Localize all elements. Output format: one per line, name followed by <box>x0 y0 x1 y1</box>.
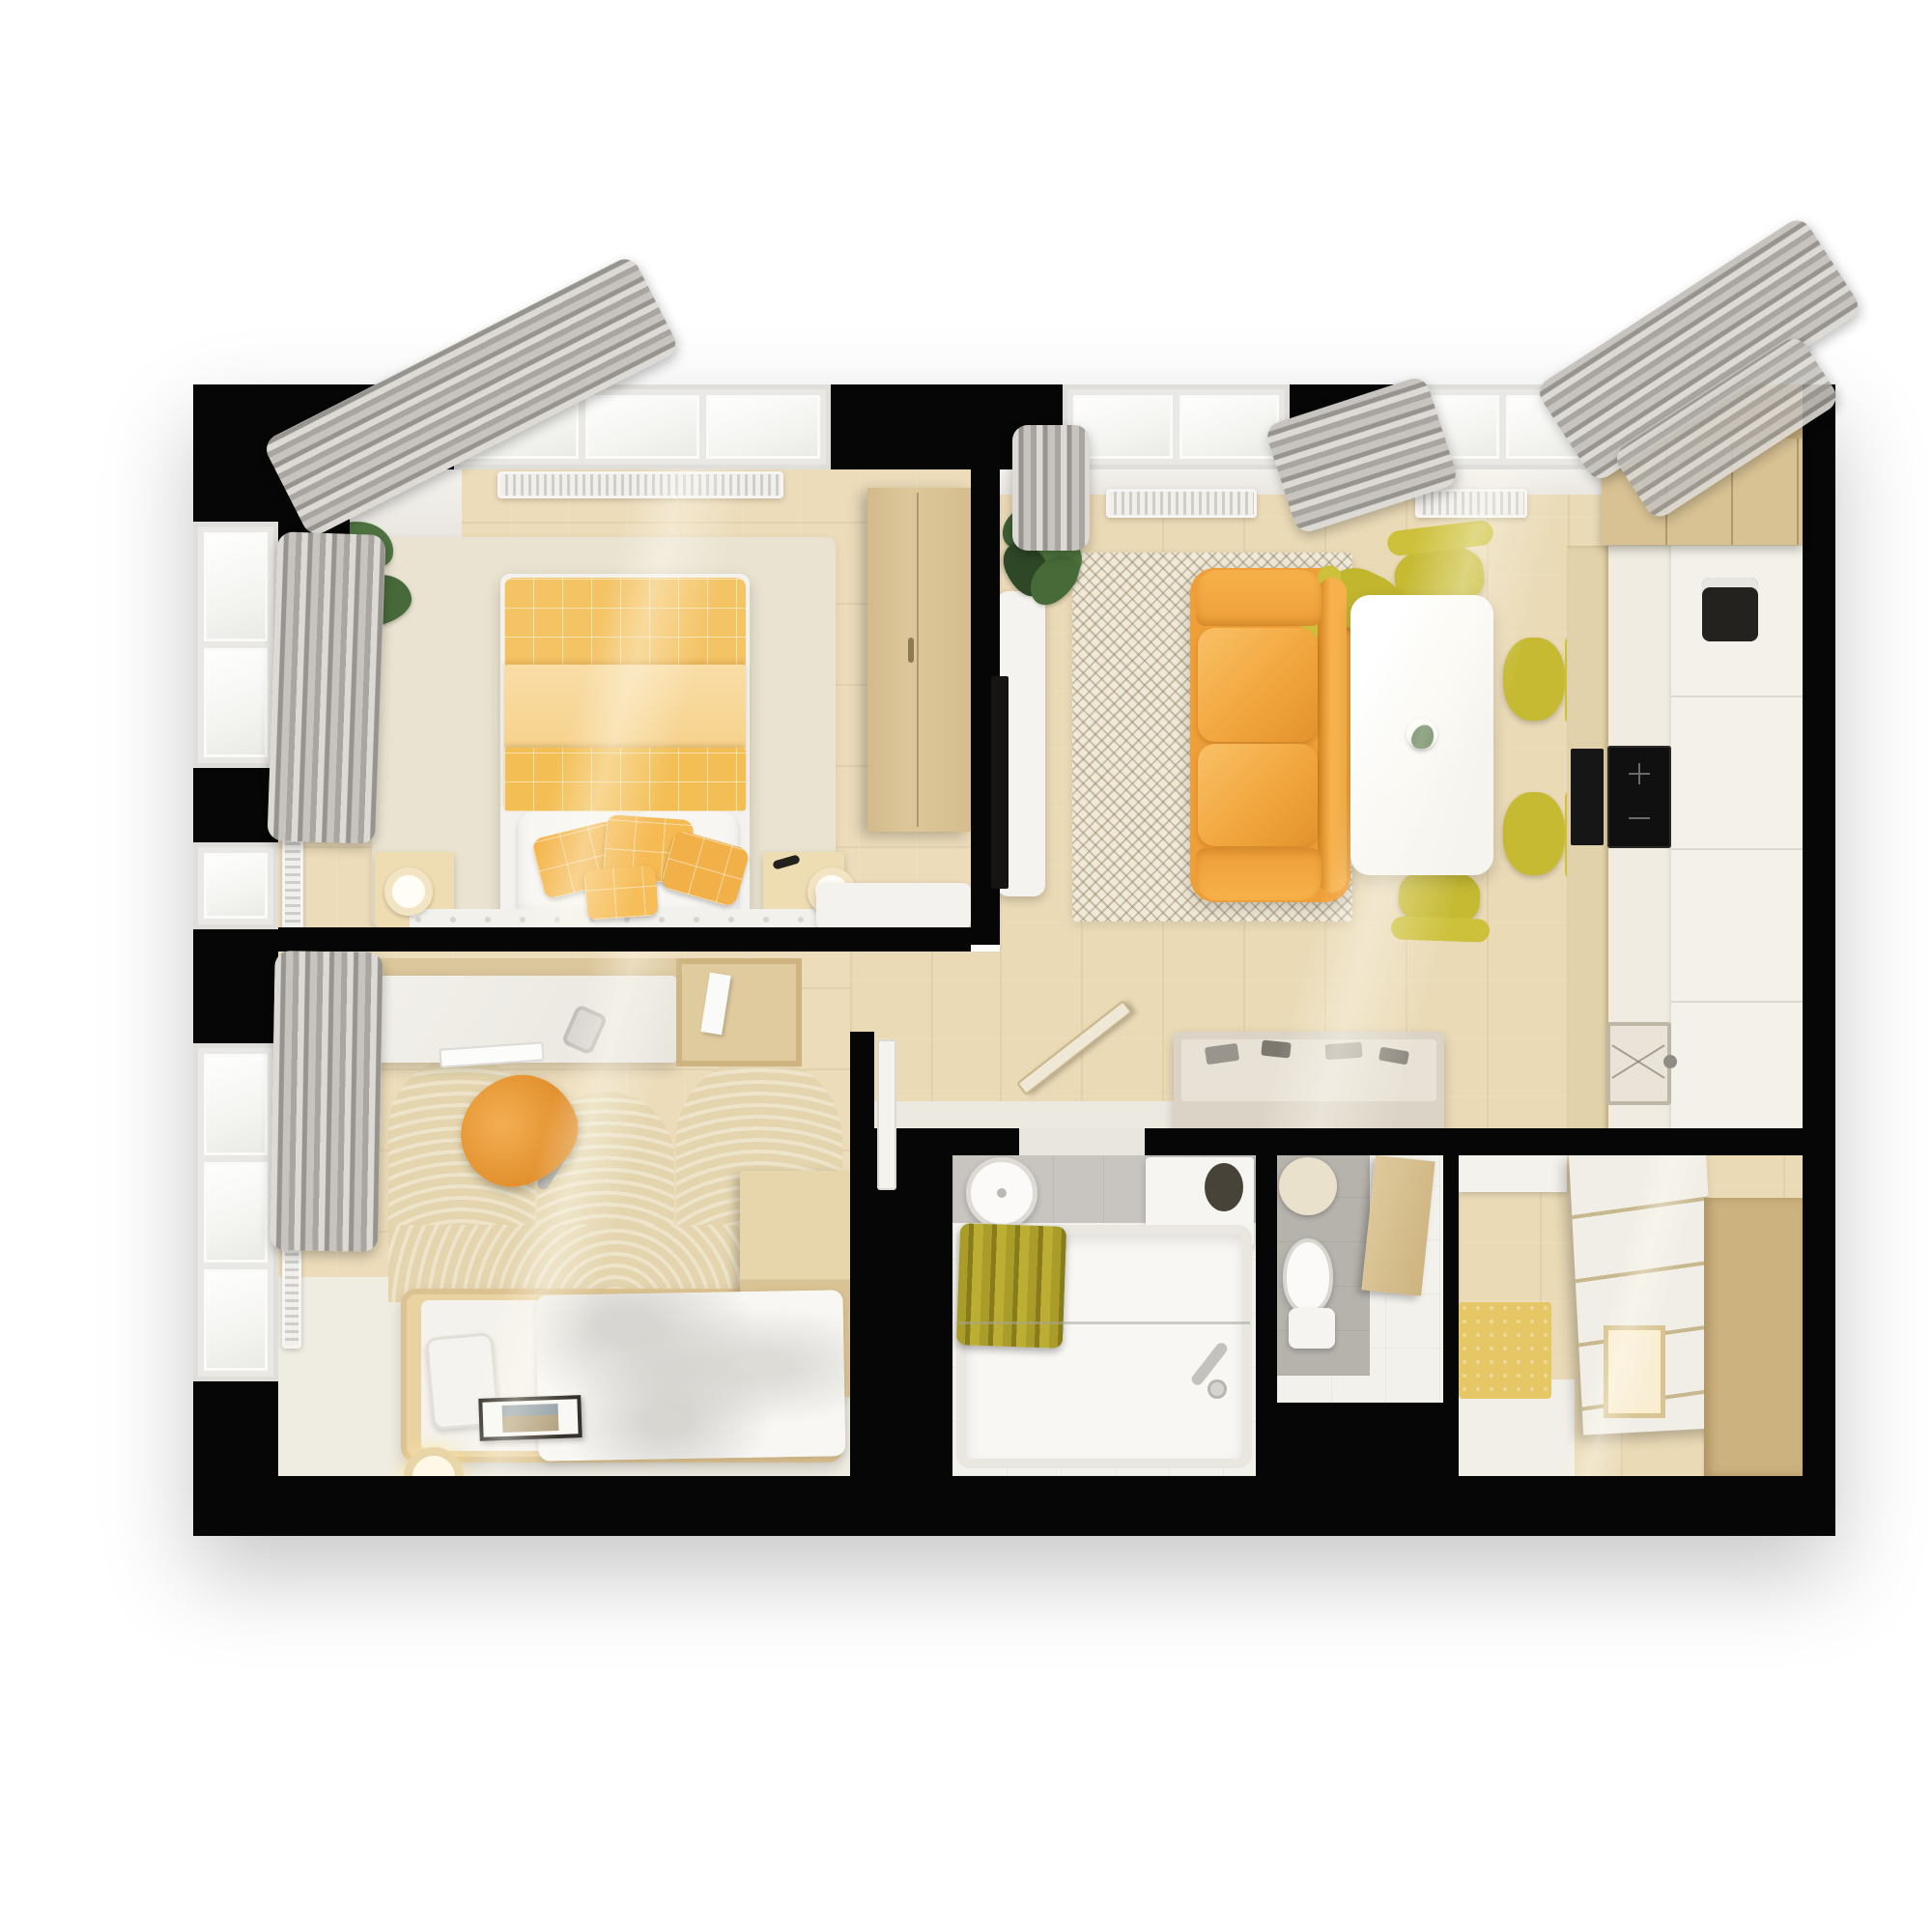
accent-pillow <box>583 865 658 920</box>
kitchen-base-tan-run <box>1567 546 1608 1155</box>
window-study-left <box>193 1043 278 1381</box>
bedroom-console <box>816 883 971 929</box>
dining-chair <box>1503 638 1565 721</box>
bedroom-wardrobe <box>867 488 971 832</box>
coffee-machine-icon <box>1702 578 1758 641</box>
entry-wardrobe-side-panel <box>1704 1198 1803 1476</box>
tv-screen <box>991 676 1009 889</box>
window-pane <box>204 1054 268 1155</box>
study-door-leaf <box>877 1039 896 1190</box>
cooktop-cross <box>1629 817 1650 819</box>
bench-item <box>1261 1039 1292 1058</box>
wall-block-bath-left <box>874 1155 952 1476</box>
sink-drain-icon <box>997 1188 1007 1198</box>
radiator-living-right <box>1415 489 1527 518</box>
wall-wc-bottom <box>1277 1403 1443 1476</box>
window-pane <box>1179 395 1279 459</box>
sofa-armrest-top <box>1196 570 1321 626</box>
entry-top-shelf <box>1459 1155 1567 1192</box>
curtain-study-left <box>270 951 383 1252</box>
cooktop-icon <box>1607 746 1671 848</box>
wall-bedroom-study <box>278 927 971 952</box>
sofa-armrest-bottom <box>1196 848 1321 900</box>
window-pane <box>204 1162 268 1264</box>
sofa-cushion <box>1198 628 1318 742</box>
wall-hall-bath-right <box>1145 1128 1803 1155</box>
wc-round-mirror <box>1279 1157 1337 1215</box>
window-pane <box>204 1269 268 1371</box>
wall-wc-entry <box>1443 1155 1459 1476</box>
curtain-living-left <box>1012 425 1090 551</box>
tub-glass-screen <box>958 1321 1250 1324</box>
window-bedroom-left-small <box>193 842 278 929</box>
curtain-bedroom-left <box>267 531 385 844</box>
bed-duvet-top-fold <box>504 578 746 667</box>
entry-yellow-mat <box>1459 1302 1551 1399</box>
radiator-living-left <box>1106 489 1257 518</box>
sink-faucet-icon <box>1663 1055 1677 1068</box>
window-pane <box>204 648 268 757</box>
toilet-bowl <box>1283 1238 1333 1314</box>
window-living-top-left <box>1063 384 1290 469</box>
window-pane <box>585 395 699 459</box>
bench-item <box>1324 1042 1362 1061</box>
wall-study-hall <box>850 1032 874 1476</box>
window-pane <box>204 532 268 641</box>
picture-art <box>502 1404 559 1433</box>
entry-niche <box>1604 1325 1665 1418</box>
desk-shelf-unit <box>676 958 802 1066</box>
lamp-icon <box>384 867 433 916</box>
cooktop-cross <box>1638 763 1640 784</box>
tub-drain-icon <box>1207 1379 1227 1399</box>
bed-duvet-bottom-fold <box>504 748 746 811</box>
wall-bottom <box>193 1476 1835 1536</box>
wall-bath-wc <box>1256 1155 1277 1476</box>
bed-duvet-light-fold <box>504 665 746 750</box>
toilet-tank <box>1289 1308 1335 1349</box>
bath-door-threshold <box>1019 1128 1145 1155</box>
dining-chair <box>1503 792 1565 875</box>
wardrobe-seam <box>917 493 919 827</box>
window-pane <box>706 395 820 459</box>
sofa-backrest <box>1318 578 1347 893</box>
window-pane <box>204 853 268 919</box>
sofa-cushion <box>1198 744 1318 846</box>
radiator-bedroom-top <box>497 471 783 498</box>
floor-plan-canvas <box>0 0 1932 1932</box>
window-bedroom-left <box>193 522 278 768</box>
wall-right <box>1803 384 1835 1536</box>
wardrobe-handle-icon <box>908 638 914 663</box>
mirror-oval-icon <box>1205 1163 1243 1211</box>
oven-icon <box>1571 749 1604 845</box>
dining-chair-back <box>1391 916 1491 943</box>
towels-olive <box>956 1223 1066 1349</box>
